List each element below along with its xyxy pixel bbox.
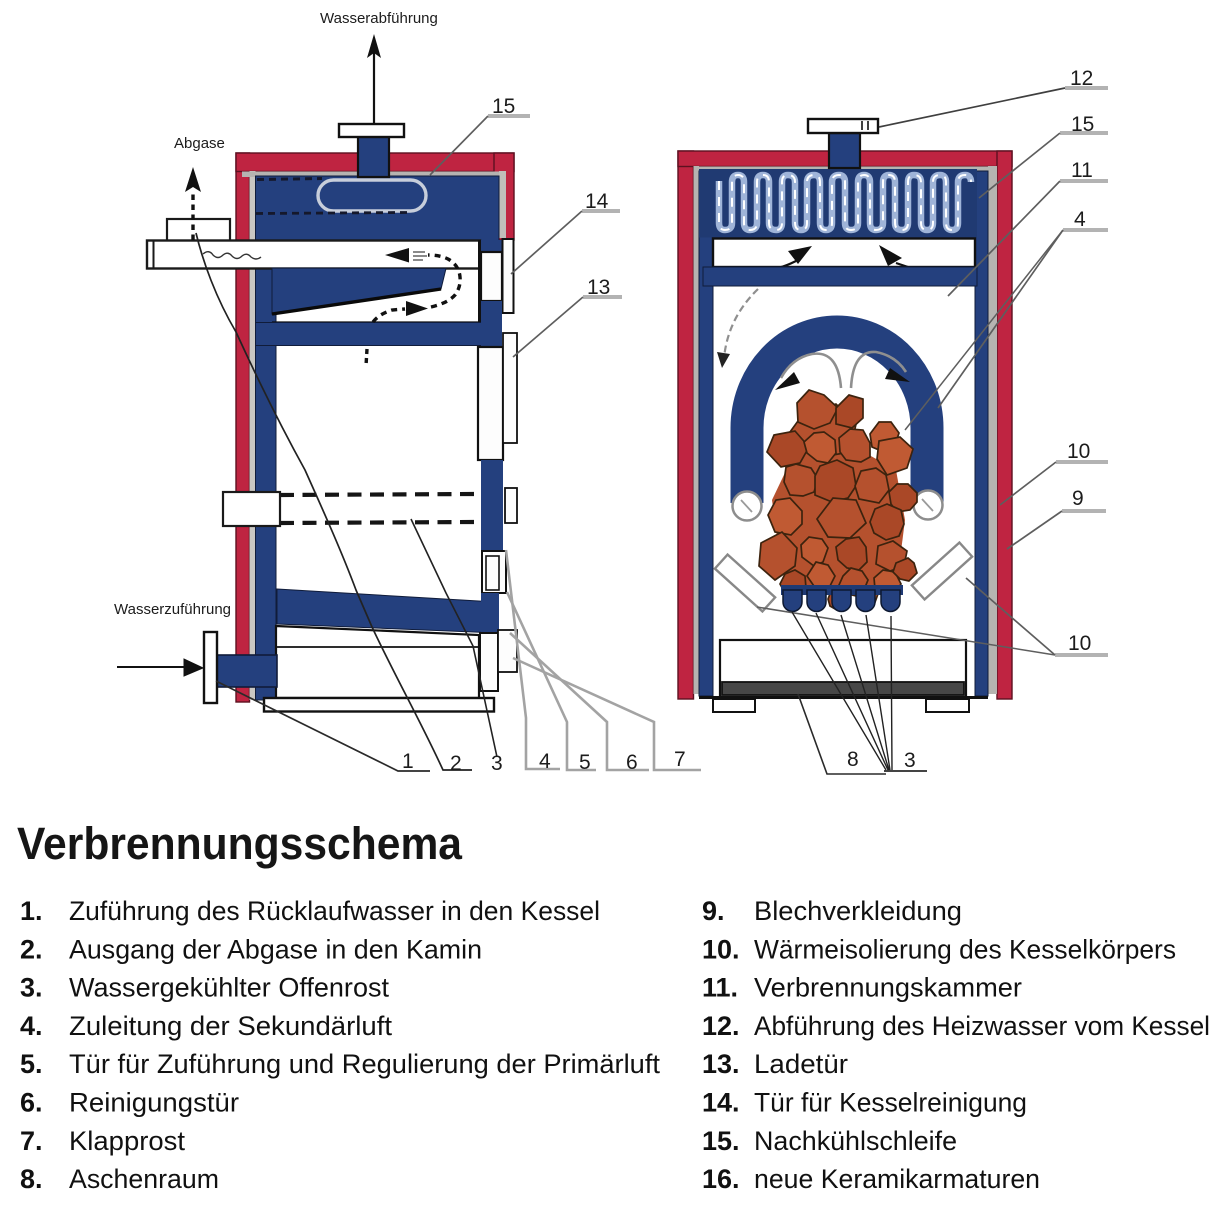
svg-text:9: 9: [1072, 487, 1084, 510]
svg-text:8: 8: [847, 748, 859, 771]
svg-text:2: 2: [450, 752, 462, 775]
svg-text:4.: 4.: [20, 1011, 43, 1041]
svg-text:15: 15: [492, 95, 515, 118]
svg-text:4: 4: [539, 750, 551, 773]
svg-text:Ausgang der Abgase in den Kami: Ausgang der Abgase in den Kamin: [69, 934, 482, 964]
svg-text:Ladetür: Ladetür: [754, 1049, 848, 1079]
svg-text:Reinigungstür: Reinigungstür: [69, 1088, 239, 1118]
svg-text:6: 6: [626, 751, 638, 774]
svg-text:10: 10: [1067, 440, 1090, 463]
svg-text:Abführung des Heizwasser vom K: Abführung des Heizwasser vom Kessel: [754, 1011, 1210, 1041]
svg-text:5: 5: [579, 751, 591, 774]
svg-text:Abgase: Abgase: [174, 135, 225, 152]
svg-text:2.: 2.: [20, 934, 43, 964]
svg-text:8.: 8.: [20, 1164, 43, 1194]
svg-text:Blechverkleidung: Blechverkleidung: [754, 896, 962, 926]
svg-text:10: 10: [1068, 632, 1091, 655]
svg-text:Aschenraum: Aschenraum: [69, 1164, 219, 1194]
svg-text:7: 7: [674, 748, 686, 771]
svg-text:13.: 13.: [702, 1049, 740, 1079]
svg-text:Tür für Kesselreinigung: Tür für Kesselreinigung: [754, 1088, 1027, 1118]
svg-text:14.: 14.: [702, 1088, 740, 1118]
svg-text:Zuführung des Rücklaufwasser i: Zuführung des Rücklaufwasser in den Kess…: [69, 896, 600, 926]
svg-text:5.: 5.: [20, 1049, 43, 1079]
svg-text:Wasserabführung: Wasserabführung: [320, 10, 438, 27]
svg-text:11: 11: [1071, 159, 1093, 182]
svg-text:Nachkühlschleife: Nachkühlschleife: [754, 1126, 957, 1156]
svg-text:13: 13: [587, 276, 610, 299]
svg-text:Tür für Zuführung und Regulier: Tür für Zuführung und Regulierung der Pr…: [69, 1049, 660, 1079]
svg-text:3: 3: [491, 752, 503, 775]
svg-text:9.: 9.: [702, 896, 725, 926]
svg-text:Verbrennungskammer: Verbrennungskammer: [754, 973, 1022, 1003]
svg-text:16.: 16.: [702, 1164, 740, 1194]
svg-text:Wasserzuführung: Wasserzuführung: [114, 601, 231, 618]
svg-text:7.: 7.: [20, 1126, 43, 1156]
svg-text:15: 15: [1071, 113, 1094, 136]
svg-text:neue Keramikarmaturen: neue Keramikarmaturen: [754, 1164, 1040, 1194]
svg-text:Klapprost: Klapprost: [69, 1126, 185, 1156]
svg-text:15.: 15.: [702, 1126, 740, 1156]
svg-text:Verbrennungsschema: Verbrennungsschema: [17, 818, 463, 869]
svg-text:10.: 10.: [702, 934, 740, 964]
svg-text:11.: 11.: [702, 973, 738, 1003]
svg-text:12: 12: [1070, 67, 1093, 90]
svg-text:Wärmeisolierung des Kesselkörp: Wärmeisolierung des Kesselkörpers: [754, 934, 1176, 964]
svg-text:14: 14: [585, 190, 609, 213]
svg-text:Wassergekühlter Offenrost: Wassergekühlter Offenrost: [69, 973, 389, 1003]
svg-text:3: 3: [904, 749, 916, 772]
svg-text:4: 4: [1074, 208, 1086, 231]
svg-text:6.: 6.: [20, 1088, 43, 1118]
svg-text:3.: 3.: [20, 973, 43, 1003]
svg-text:1: 1: [402, 750, 414, 773]
svg-text:12.: 12.: [702, 1011, 740, 1041]
svg-text:1.: 1.: [20, 896, 43, 926]
svg-text:Zuleitung der Sekundärluft: Zuleitung der Sekundärluft: [69, 1011, 393, 1041]
